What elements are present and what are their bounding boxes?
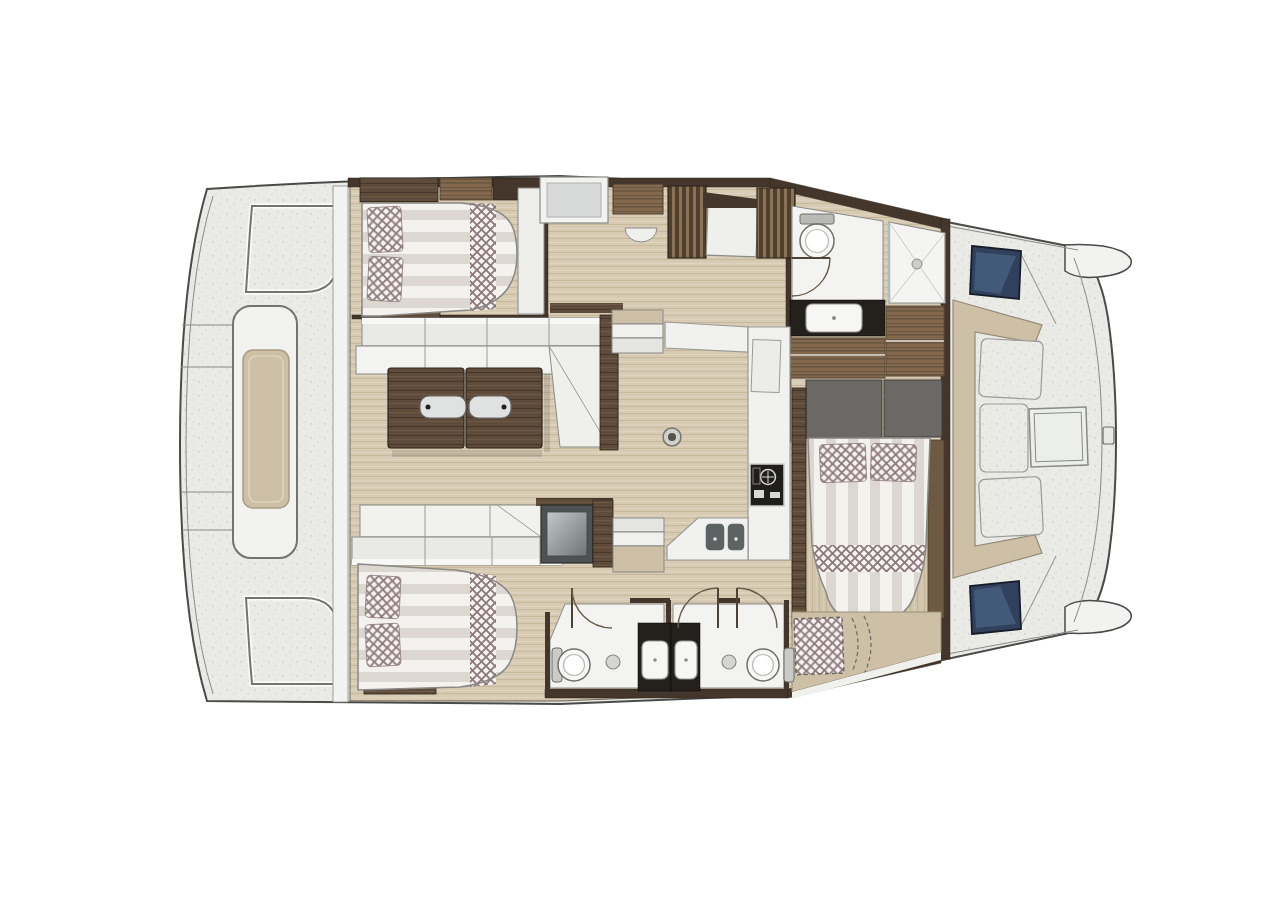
fridge-front [547,183,601,217]
vanity-cabinet [790,338,885,378]
port-berth-runner [470,203,496,311]
bow-table [1029,407,1088,467]
starboard-cabin [358,564,517,694]
toilet-starboard-aft [552,648,590,682]
port-cabin [360,178,547,320]
aft-corner-seat-port [246,206,338,292]
deck-hatch-port [970,246,1021,299]
cutting-board [751,340,781,393]
port-pillow-1 [367,206,403,253]
bow-tip-starboard [1065,601,1131,634]
sunpad-cushion [794,617,844,675]
owner-pillow-2 [870,443,916,482]
owner-cabin [792,380,944,699]
deck-hatch-starboard [970,581,1021,634]
drain-fwd [722,655,736,669]
port-bathroom [790,206,945,378]
shower-drain [912,259,922,269]
starboard-berth [358,564,517,690]
cockpit-aft-bulkhead [333,186,348,702]
starboard-pillow-2 [365,623,401,667]
galley-counter-forward [665,322,748,352]
owner-side-unit [928,440,944,618]
dresser-forward-gap [886,340,944,342]
wardrobe-louver-2 [757,188,795,258]
galley-sink [705,523,745,551]
wardrobe-louver-1 [668,186,706,258]
drain-aft [606,655,620,669]
bow-roller [1103,427,1114,444]
saloon-table [388,368,550,457]
vanity-starboard-fwd [671,623,700,691]
saloon [352,310,664,572]
sunpad [792,612,941,699]
saloon-sofa-aft [352,505,562,565]
stairs-starboard-hull [613,518,664,572]
owner-berth-runner [812,545,926,572]
vanity-port [790,300,885,336]
starboard-bathrooms [545,588,794,692]
cooktop [750,464,784,506]
catamaran-floor-plan-page [0,0,1280,905]
port-berth [362,203,517,316]
catamaran-floor-plan [0,0,1280,905]
owner-pillow-1 [819,443,866,483]
vanity-starboard-aft [638,623,671,691]
aft-corner-seat-starboard [246,598,338,684]
bathroom-wall-left [545,612,550,692]
port-shelf-light [440,178,492,200]
starboard-pillow-1 [365,575,401,619]
port-pillow-2 [367,256,403,302]
laundry-box [706,205,758,257]
owner-wardrobe [792,388,806,628]
owner-headboard-2 [884,380,942,437]
owner-headboard-1 [806,380,882,438]
stairs-port-hull [612,310,663,353]
cool-box [536,498,613,567]
port-headboard-shelf [360,178,438,202]
toilet-port [800,214,834,258]
vanity-cabinet-gap [790,354,885,356]
bathroom-wall-stub-1 [630,598,670,603]
starboard-berth-runner [470,572,496,687]
shelf-unit [613,184,663,214]
shower [889,222,945,303]
floor-hatch-handle [668,433,676,441]
toilet-starboard-fwd [747,648,794,682]
aft-bench [233,306,297,558]
